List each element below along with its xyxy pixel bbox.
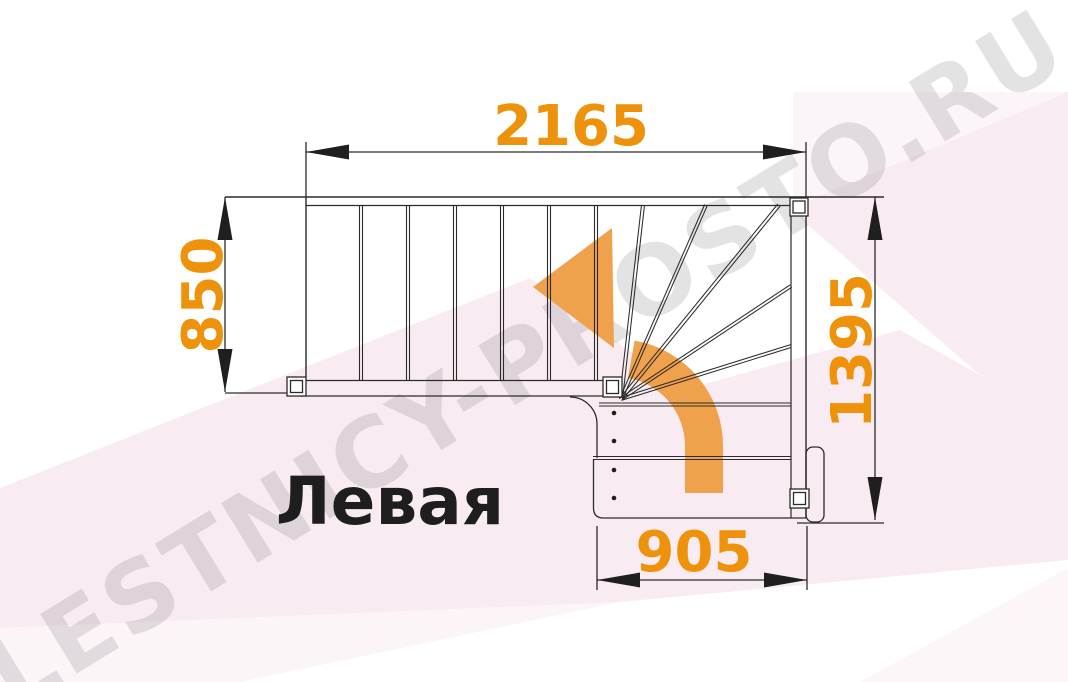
arrowhead-up-icon (218, 197, 233, 240)
dimension-top-value: 2165 (493, 94, 649, 159)
dimension-left-value: 850 (171, 237, 236, 354)
newel-post-bottom-right (790, 489, 809, 508)
newel-post-rail-right (603, 377, 622, 397)
newel-post-rail-left (287, 377, 306, 396)
arrowhead-down-icon (218, 349, 233, 392)
arrowhead-left-icon (306, 145, 349, 160)
dimension-right-value: 1395 (820, 273, 885, 429)
newel-post-top-right (790, 198, 808, 216)
stair-plan-drawing: LESTNICY-PROSTO.RU (0, 0, 1068, 682)
dimension-bottom-value: 905 (636, 520, 753, 585)
staircase-plan-page: LESTNICY-PROSTO.RU (0, 0, 1068, 682)
plan-type-label: Левая (276, 463, 504, 540)
